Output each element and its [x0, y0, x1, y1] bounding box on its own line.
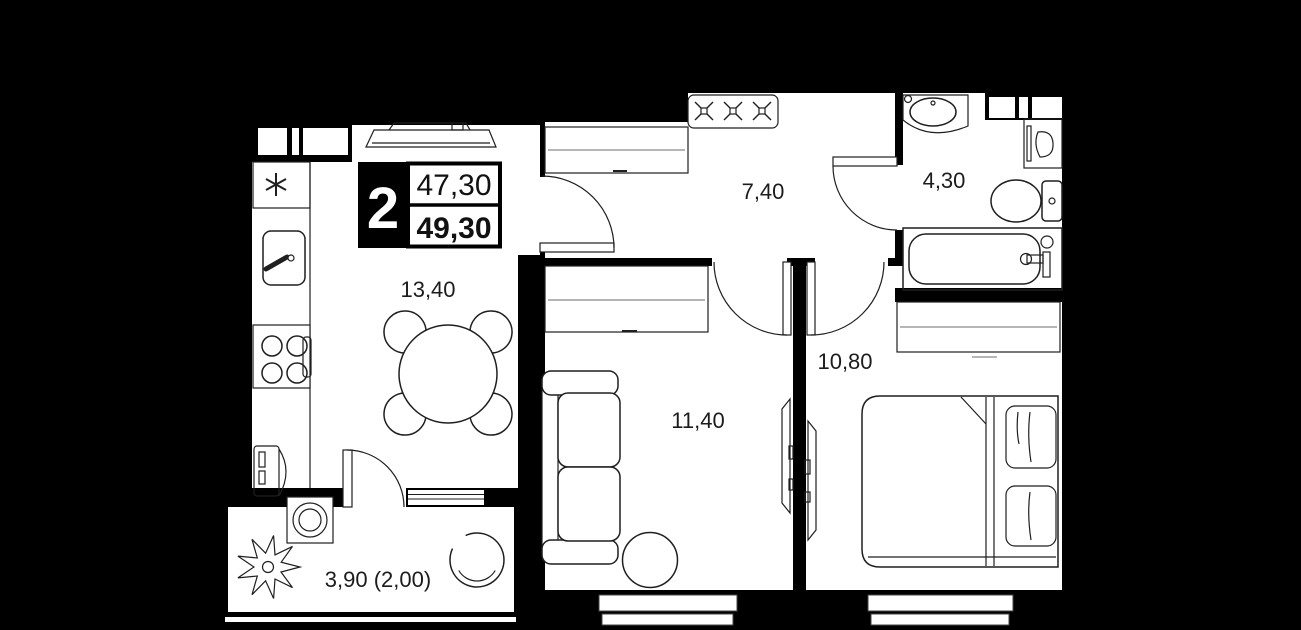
shaft-icon	[989, 97, 1015, 118]
shaft-icon	[303, 128, 348, 155]
wall-hallway-topleft	[545, 93, 688, 122]
balcony-area-label: 3,90 (2,00)	[325, 567, 431, 592]
floor-plan-canvas: 13,40 7,40 4,30 10,80 11,40 3,90 (2,00) …	[0, 0, 1301, 630]
hob-icon	[253, 325, 311, 388]
window-balcony	[408, 490, 484, 505]
stool-icon	[287, 497, 333, 543]
shaft-icon	[292, 128, 299, 155]
living-area-label: 11,40	[671, 408, 724, 433]
shaft-icon	[1032, 97, 1062, 118]
shaft-icon	[1019, 97, 1028, 118]
doorway-bedroom	[815, 258, 888, 266]
balcony-railing	[225, 617, 516, 622]
badge-area-bottom: 49,30	[416, 212, 491, 245]
sofa-icon	[542, 371, 620, 564]
bedroom-area-label: 10,80	[817, 349, 872, 374]
badge-area-top: 47,30	[416, 169, 491, 202]
apartment-badge: 2 47,30 49,30	[358, 162, 500, 248]
toilet-icon	[991, 180, 1062, 222]
doorway-kitchen	[540, 177, 545, 250]
doorway-balcony	[349, 488, 406, 507]
pillow-icon	[1006, 486, 1056, 546]
hallway-area-label: 7,40	[742, 179, 785, 204]
kitchen-area-label: 13,40	[400, 277, 455, 302]
wall-kitchen-living	[518, 255, 540, 488]
floor-plan: 13,40 7,40 4,30 10,80 11,40 3,90 (2,00) …	[0, 0, 1301, 630]
window-bedroom	[868, 595, 1013, 625]
shaft-icon	[258, 128, 287, 155]
window-living	[599, 595, 737, 625]
coffee-table-icon	[623, 533, 678, 588]
doorway-living	[712, 258, 787, 266]
badge-rooms-count: 2	[367, 176, 399, 241]
bathroom-area-label: 4,30	[923, 168, 966, 193]
doorway-bathroom	[895, 165, 903, 230]
pillow-icon	[1006, 406, 1056, 468]
